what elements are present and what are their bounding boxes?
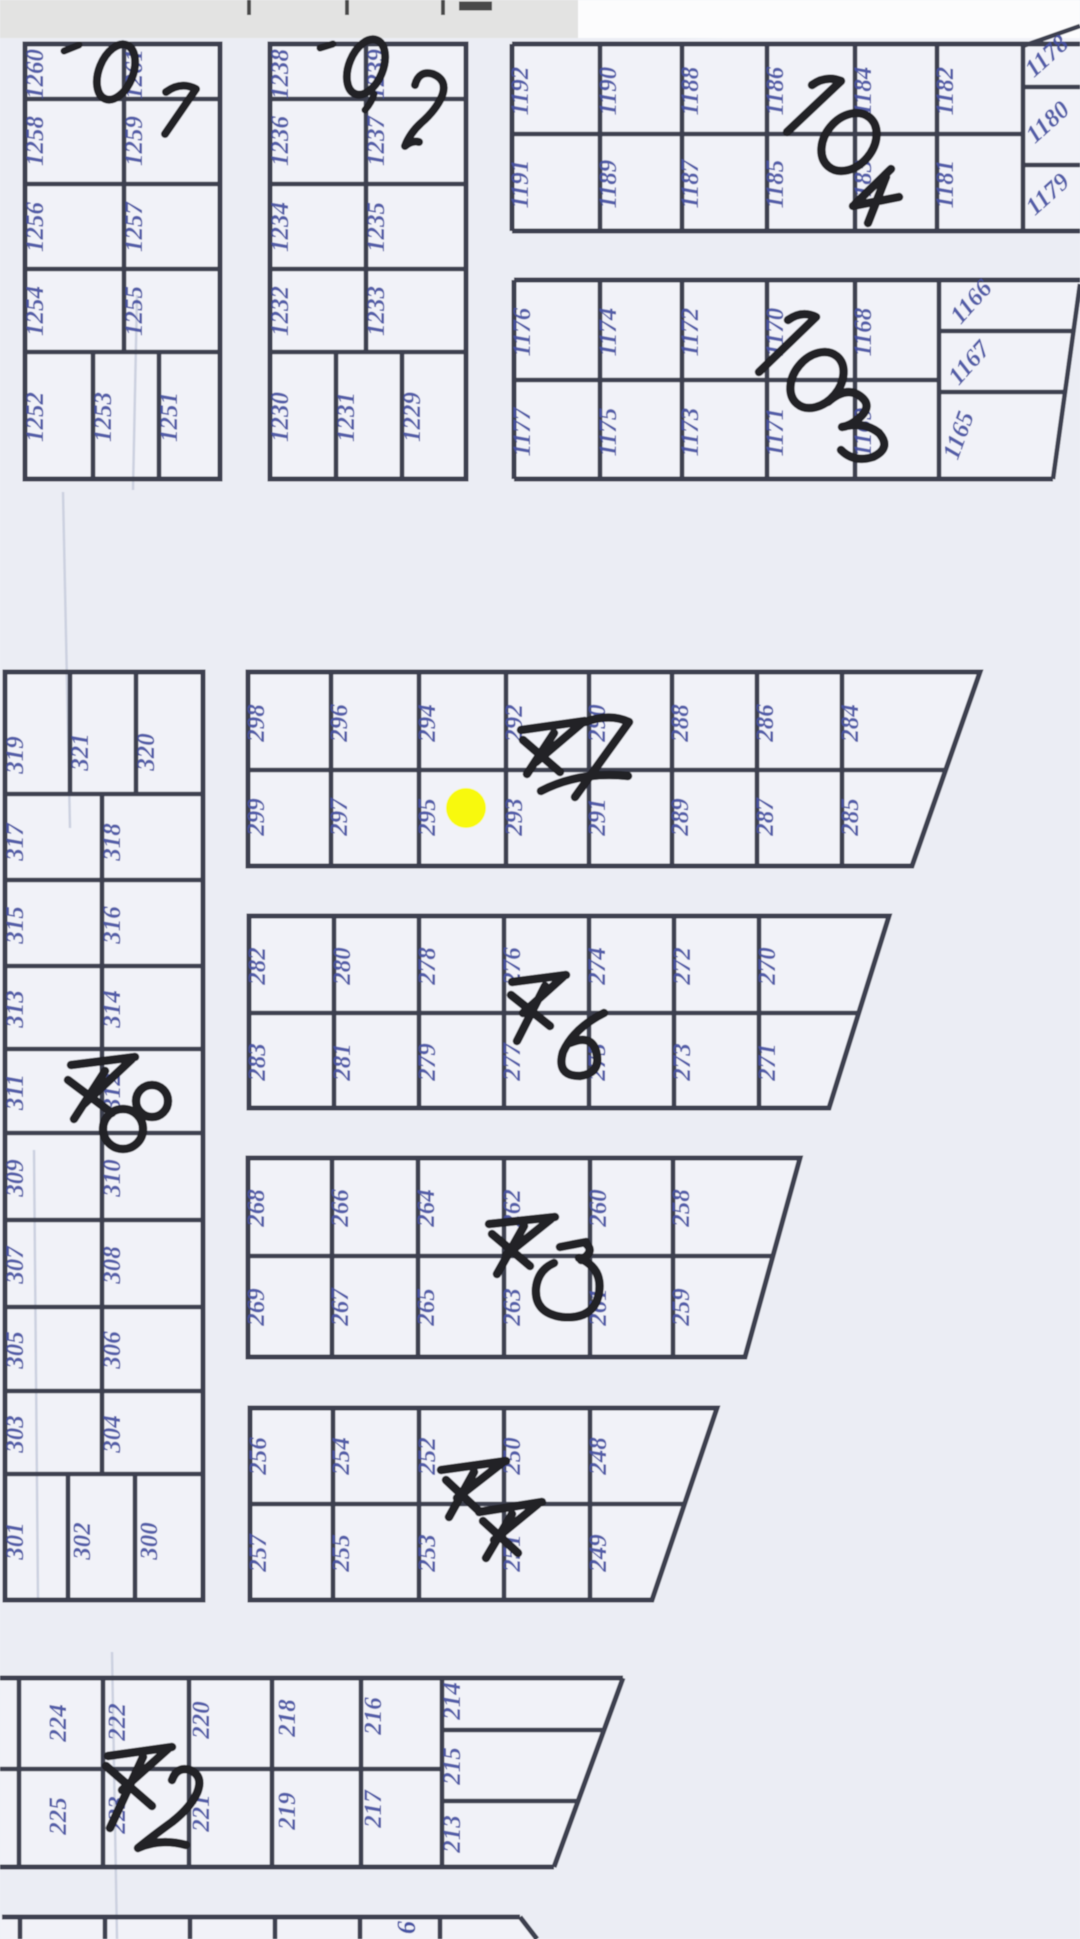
- svg-text:1171: 1171: [762, 408, 789, 457]
- svg-text:1254: 1254: [22, 286, 49, 336]
- svg-text:274: 274: [584, 947, 611, 986]
- svg-text:1235: 1235: [363, 202, 390, 252]
- svg-text:297: 297: [326, 797, 353, 837]
- svg-text:315: 315: [2, 906, 29, 945]
- svg-text:224: 224: [45, 1704, 72, 1743]
- svg-text:280: 280: [329, 947, 356, 986]
- svg-text:296: 296: [326, 704, 353, 743]
- svg-text:301: 301: [2, 1522, 29, 1561]
- svg-text:1260: 1260: [22, 49, 49, 100]
- svg-text:260: 260: [585, 1189, 612, 1228]
- svg-text:273: 273: [669, 1043, 696, 1082]
- svg-text:263: 263: [499, 1288, 526, 1327]
- svg-text:219: 219: [274, 1792, 301, 1831]
- svg-text:1252: 1252: [22, 392, 49, 442]
- svg-text:225: 225: [45, 1797, 72, 1836]
- svg-text:281: 281: [329, 1043, 356, 1082]
- svg-text:1182: 1182: [932, 67, 959, 116]
- svg-text:1189: 1189: [595, 159, 622, 208]
- svg-text:1173: 1173: [677, 408, 704, 457]
- svg-text:255: 255: [328, 1534, 355, 1573]
- svg-text:311: 311: [2, 1074, 29, 1111]
- svg-text:264: 264: [413, 1189, 440, 1228]
- svg-text:271: 271: [754, 1043, 781, 1082]
- svg-text:277: 277: [499, 1042, 526, 1082]
- svg-text:282: 282: [244, 947, 271, 986]
- svg-text:1237: 1237: [363, 115, 390, 167]
- svg-text:249: 249: [585, 1534, 612, 1573]
- svg-text:1191: 1191: [507, 160, 534, 209]
- svg-text:254: 254: [328, 1437, 355, 1476]
- svg-text:295: 295: [414, 798, 441, 837]
- svg-text:266: 266: [327, 1189, 354, 1228]
- svg-text:265: 265: [413, 1288, 440, 1327]
- svg-text:306: 306: [99, 1331, 126, 1370]
- svg-text:258: 258: [668, 1189, 695, 1228]
- svg-text:313: 313: [2, 990, 29, 1029]
- svg-text:222: 222: [104, 1703, 131, 1742]
- svg-text:307: 307: [2, 1245, 29, 1285]
- svg-text:1256: 1256: [22, 202, 49, 253]
- svg-text:309: 309: [2, 1159, 29, 1198]
- svg-text:314: 314: [99, 990, 126, 1029]
- svg-text:291: 291: [584, 798, 611, 837]
- svg-text:1231: 1231: [333, 392, 360, 442]
- svg-text:270: 270: [754, 947, 781, 986]
- svg-text:284: 284: [837, 704, 864, 743]
- svg-text:318: 318: [99, 823, 126, 862]
- svg-text:1238: 1238: [267, 49, 294, 100]
- svg-text:288: 288: [667, 704, 694, 743]
- svg-text:272: 272: [669, 947, 696, 986]
- svg-text:289: 289: [667, 798, 694, 837]
- svg-text:1186: 1186: [762, 66, 789, 115]
- svg-text:300: 300: [136, 1522, 163, 1561]
- svg-text:1257: 1257: [121, 201, 148, 253]
- svg-text:1168: 1168: [850, 307, 877, 356]
- svg-text:1259: 1259: [121, 116, 148, 167]
- svg-text:1253: 1253: [90, 392, 117, 442]
- svg-text:1251: 1251: [156, 392, 183, 442]
- svg-text:1258: 1258: [22, 116, 49, 167]
- svg-text:1190: 1190: [595, 66, 622, 115]
- svg-text:316: 316: [99, 906, 126, 945]
- svg-text:1184: 1184: [850, 67, 877, 116]
- svg-text:1185: 1185: [762, 160, 789, 209]
- svg-text:303: 303: [2, 1415, 29, 1454]
- svg-text:1177: 1177: [509, 406, 536, 456]
- svg-text:298: 298: [243, 704, 270, 743]
- svg-text:1234: 1234: [267, 202, 294, 252]
- svg-text:220: 220: [188, 1701, 215, 1740]
- svg-text:1181: 1181: [932, 160, 959, 209]
- svg-text:304: 304: [99, 1415, 126, 1454]
- svg-text:294: 294: [414, 704, 441, 743]
- svg-text:1233: 1233: [363, 286, 390, 336]
- svg-text:1236: 1236: [267, 116, 294, 167]
- svg-text:218: 218: [274, 1699, 301, 1738]
- svg-text:287: 287: [752, 797, 779, 837]
- svg-text:1174: 1174: [595, 308, 622, 357]
- svg-text:259: 259: [668, 1288, 695, 1327]
- svg-text:256: 256: [245, 1437, 272, 1476]
- svg-text:321: 321: [67, 733, 94, 772]
- svg-text:317: 317: [2, 822, 29, 862]
- svg-text:319: 319: [2, 736, 29, 775]
- svg-text:279: 279: [414, 1043, 441, 1082]
- svg-text:250: 250: [499, 1437, 526, 1476]
- svg-text:305: 305: [2, 1331, 29, 1370]
- svg-text:215: 215: [439, 1747, 466, 1786]
- svg-text:1188: 1188: [677, 66, 704, 115]
- svg-text:217: 217: [360, 1789, 387, 1829]
- svg-text:1176: 1176: [509, 307, 536, 356]
- svg-text:214: 214: [439, 1682, 466, 1721]
- svg-text:257: 257: [245, 1533, 272, 1573]
- svg-text:293: 293: [501, 798, 528, 837]
- svg-text:299: 299: [243, 798, 270, 837]
- svg-text:310: 310: [99, 1159, 126, 1198]
- svg-text:285: 285: [837, 798, 864, 837]
- svg-text:1255: 1255: [121, 286, 148, 336]
- svg-text:1192: 1192: [507, 67, 534, 116]
- svg-text:268: 268: [243, 1189, 270, 1228]
- svg-text:248: 248: [585, 1437, 612, 1476]
- svg-text:308: 308: [99, 1246, 126, 1285]
- svg-text:269: 269: [243, 1288, 270, 1327]
- svg-text:1229: 1229: [399, 392, 426, 443]
- svg-text:1230: 1230: [267, 392, 294, 443]
- svg-text:1232: 1232: [267, 286, 294, 336]
- svg-text:216: 216: [360, 1697, 387, 1736]
- svg-text:286: 286: [752, 704, 779, 743]
- svg-text:1175: 1175: [595, 408, 622, 457]
- svg-text:1187: 1187: [677, 158, 704, 208]
- svg-text:283: 283: [244, 1043, 271, 1082]
- svg-text:278: 278: [414, 947, 441, 986]
- svg-text:267: 267: [327, 1287, 354, 1327]
- svg-text:253: 253: [414, 1534, 441, 1573]
- svg-text:320: 320: [133, 733, 160, 772]
- svg-text:302: 302: [69, 1522, 96, 1561]
- svg-text:1172: 1172: [677, 308, 704, 357]
- svg-text:213: 213: [439, 1815, 466, 1854]
- svg-text:6: 6: [392, 1921, 421, 1934]
